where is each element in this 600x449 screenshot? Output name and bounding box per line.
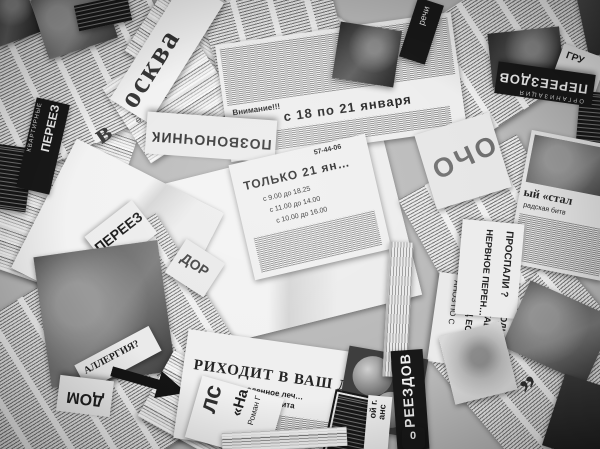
scrap-prospali-ad: ПРОСПАЛИ ? НЕРВНОЕ ПЕРЕН…	[454, 219, 524, 319]
prospali-text: ПРОСПАЛИ ?	[498, 231, 514, 298]
zero-text: 0	[410, 431, 416, 443]
nervnoe-text: НЕРВНОЕ ПЕРЕН…	[477, 229, 494, 316]
dom-text: ДОМ	[66, 387, 105, 408]
ans-text: анс	[377, 404, 388, 420]
newspaper-collage-photo: осква в КВАРТИРНЫЕ ПЕРЕЕЗ КВ АЛМАГ ФИЛ В…	[0, 0, 600, 449]
phone-number: 57-44-06	[313, 144, 342, 157]
rechi-text: речи	[417, 5, 432, 26]
ls-text: лс	[195, 382, 227, 416]
collage-layer: осква в КВАРТИРНЫЕ ПЕРЕЕЗ КВ АЛМАГ ФИЛ В…	[0, 0, 600, 449]
pozvonochnik-text: ПОЗВОНОЧНИК	[150, 129, 272, 152]
scrap-vertical-caption: ой г. анс	[364, 395, 393, 449]
ocho-text: ОЧО	[428, 129, 503, 184]
attention-text: Внимание!!!	[232, 103, 281, 118]
scrap-spine-headline: ПОЗВОНОЧНИК	[145, 112, 278, 163]
photo-fragment	[332, 22, 402, 88]
scrap-dom-headline: ДОМ	[56, 375, 114, 417]
zero-badge: 0	[402, 427, 425, 449]
label-pereez-text: ПЕРЕЕЗ	[39, 103, 62, 153]
dor-text: ДОР	[178, 250, 211, 279]
gruz-text: ГРУ	[564, 51, 585, 67]
